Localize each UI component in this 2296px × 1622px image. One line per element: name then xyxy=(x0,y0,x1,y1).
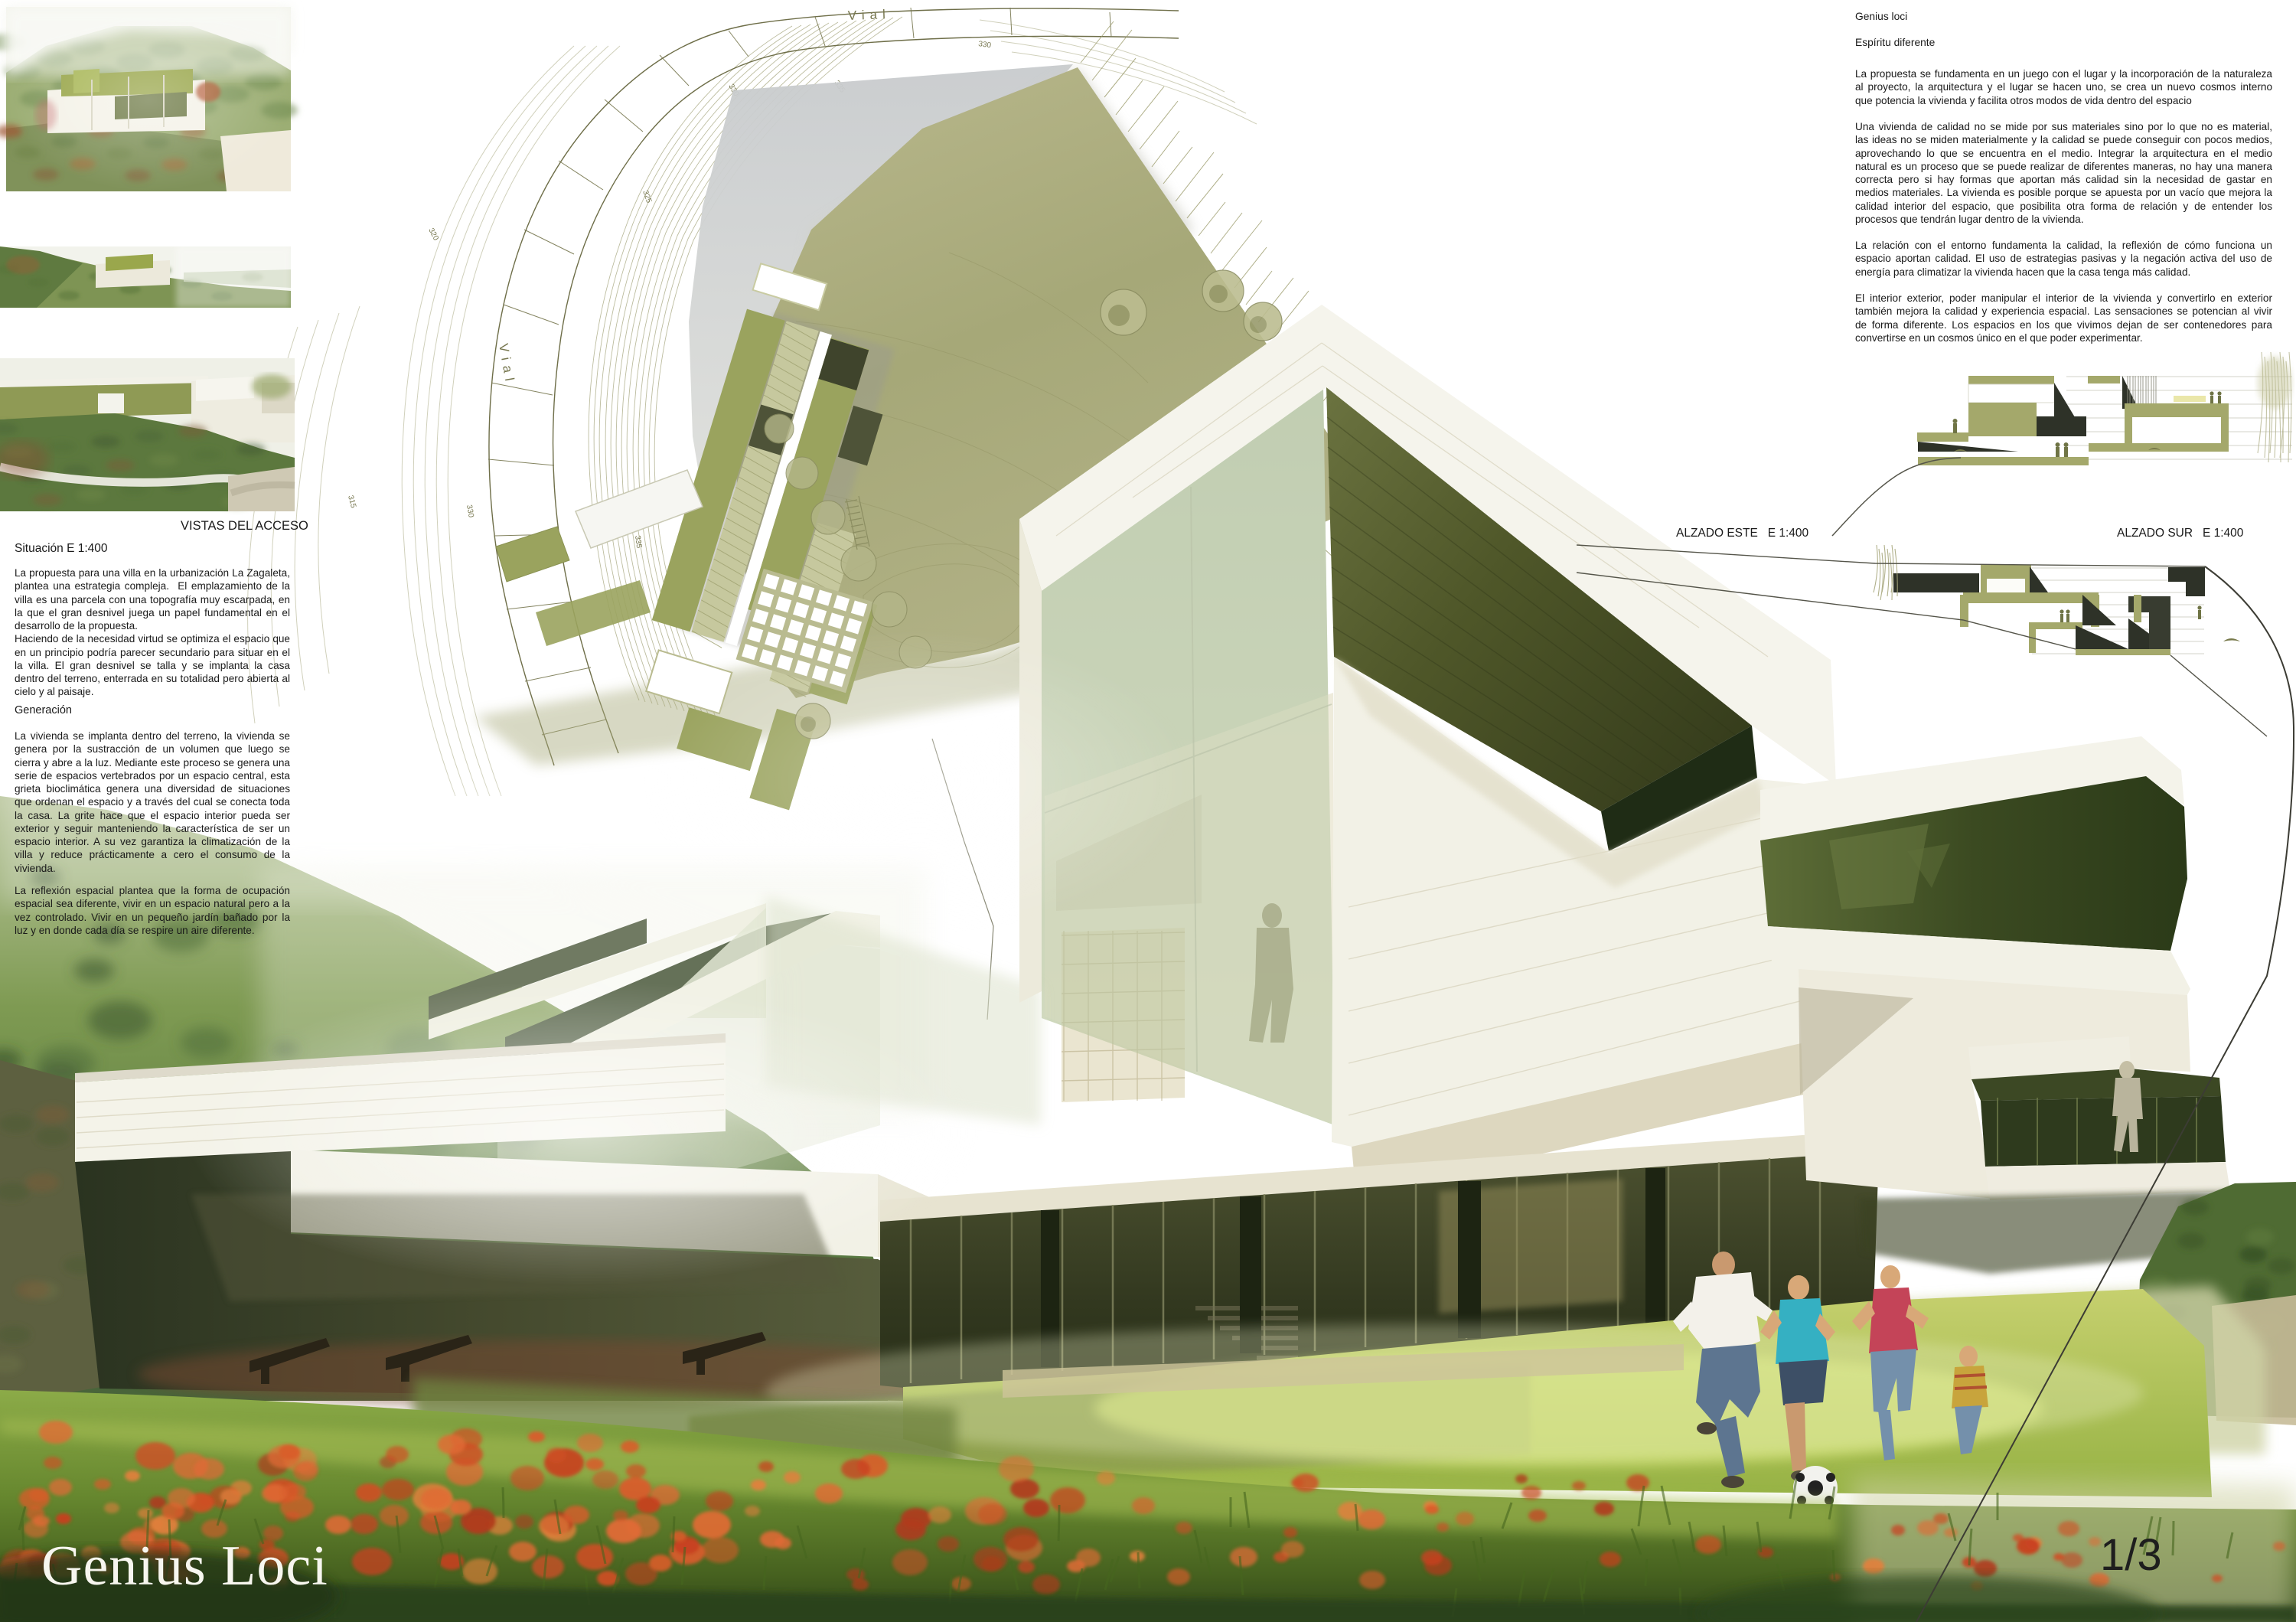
svg-text:Vial: Vial xyxy=(847,7,891,23)
